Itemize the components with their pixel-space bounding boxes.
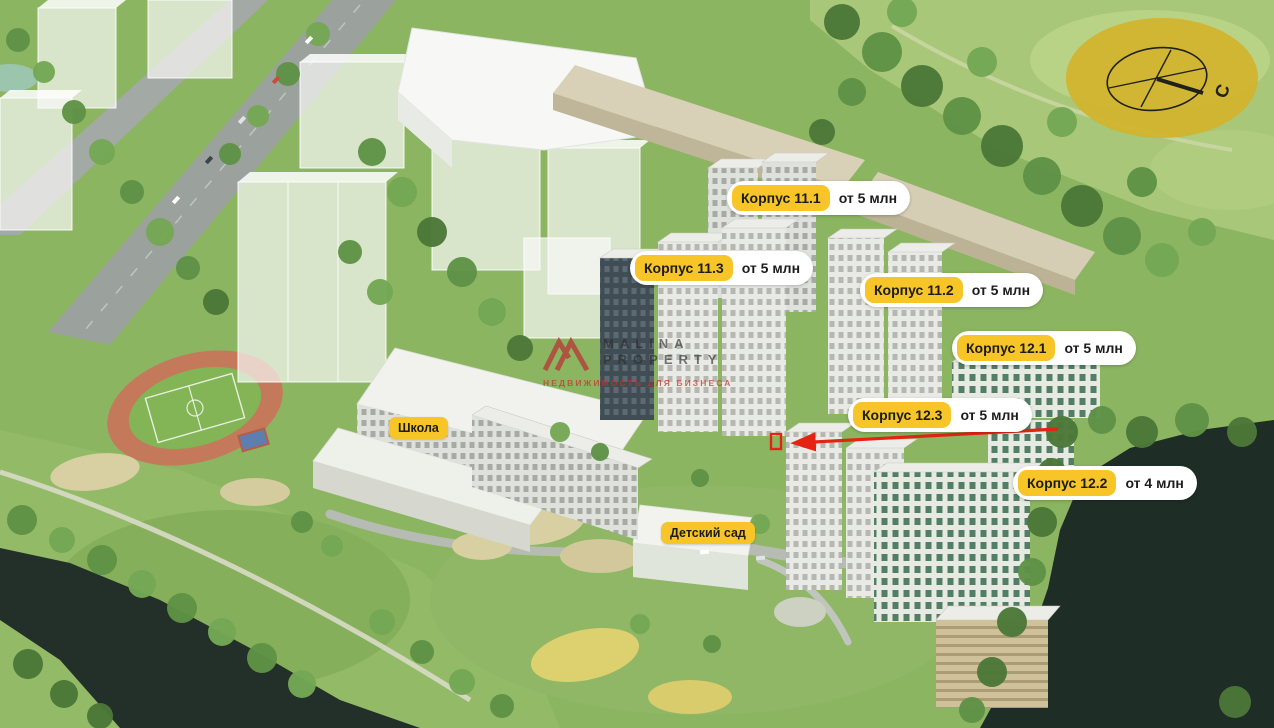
label-korpus-11-1[interactable]: Корпус 11.1 от 5 млн: [727, 181, 910, 215]
korpus-price: от 5 млн: [960, 407, 1018, 423]
korpus-name-badge: Корпус 11.3: [635, 255, 733, 281]
korpus-name-badge: Корпус 11.1: [732, 185, 830, 211]
korpus-price: от 5 млн: [972, 282, 1030, 298]
korpus-name-badge: Корпус 12.3: [853, 402, 951, 428]
label-school[interactable]: Школа: [389, 417, 448, 439]
kindergarten-building: [633, 505, 755, 590]
masterplan-screenshot: С MALINA PROPERTY НЕДВИЖИМОСТЬ ДЛЯ БИЗНЕ…: [0, 0, 1274, 728]
label-korpus-11-3[interactable]: Корпус 11.3 от 5 млн: [630, 251, 813, 285]
korpus-price: от 5 млн: [1064, 340, 1122, 356]
label-korpus-11-2[interactable]: Корпус 11.2 от 5 млн: [860, 273, 1043, 307]
label-korpus-12-3[interactable]: Корпус 12.3 от 5 млн: [848, 398, 1032, 432]
korpus-price: от 4 млн: [1125, 475, 1183, 491]
korpus-price: от 5 млн: [742, 260, 800, 276]
korpus-name-badge: Корпус 12.1: [957, 335, 1055, 361]
label-korpus-12-2[interactable]: Корпус 12.2 от 4 млн: [1013, 466, 1197, 500]
korpus-name-badge: Корпус 12.2: [1018, 470, 1116, 496]
compass-icon: С: [1066, 18, 1258, 138]
label-korpus-12-1[interactable]: Корпус 12.1 от 5 млн: [952, 331, 1136, 365]
korpus-price: от 5 млн: [839, 190, 897, 206]
label-kindergarten[interactable]: Детский сад: [661, 522, 755, 544]
korpus-name-badge: Корпус 11.2: [865, 277, 963, 303]
